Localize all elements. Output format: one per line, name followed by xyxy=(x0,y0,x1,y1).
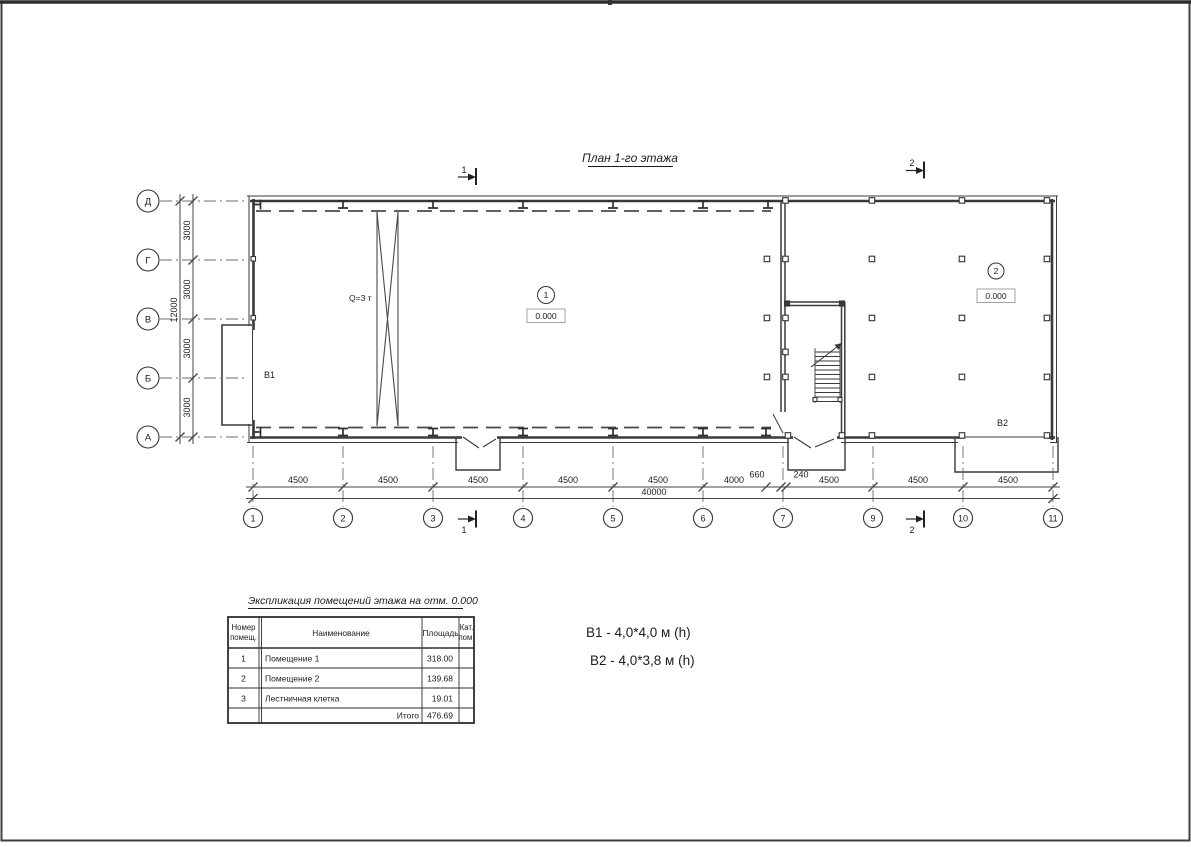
gate-b2-label: B2 xyxy=(997,418,1008,428)
bottom-dimension-values: 4500 4500 4500 4500 4500 4000 660 240 45… xyxy=(288,470,1018,498)
section-label: 1 xyxy=(461,525,466,535)
dim-value: 3000 xyxy=(182,397,192,417)
axis-label: 11 xyxy=(1048,513,1057,523)
cell-area: 318.00 xyxy=(427,654,453,664)
axis-label: 2 xyxy=(340,513,345,523)
room-tag-1: 1 0.000 xyxy=(527,287,565,323)
cell-name: Помещение 2 xyxy=(265,674,320,684)
loading-dock-b2 xyxy=(955,437,1058,472)
dim-value: 4000 xyxy=(724,475,744,485)
room-elevation: 0.000 xyxy=(535,311,557,321)
axis-label: 9 xyxy=(870,513,875,523)
dim-value: 3000 xyxy=(182,279,192,299)
crane-runway xyxy=(256,211,771,428)
axis-bubbles-left: Д Г В Б А xyxy=(137,190,159,448)
axis-label: 1 xyxy=(250,513,255,523)
dim-value: 240 xyxy=(793,470,808,480)
crane-capacity-label: Q=3 т xyxy=(349,293,372,303)
total-label: Итого xyxy=(397,711,420,721)
dim-value: 4500 xyxy=(908,475,928,485)
page-border xyxy=(0,0,1191,841)
steel-columns xyxy=(254,200,774,438)
dim-total: 40000 xyxy=(641,487,666,497)
page-title: План 1-го этажа xyxy=(582,151,678,165)
cell-name: Лестничная клетка xyxy=(265,694,340,704)
cell-area: 139.68 xyxy=(427,674,453,684)
dim-value: 4500 xyxy=(819,475,839,485)
axis-label: 7 xyxy=(780,513,785,523)
cell-num: 2 xyxy=(241,674,246,684)
col-header-number: Номер xyxy=(232,623,257,632)
floorplan-canvas: План 1-го этажа 1 2 xyxy=(0,0,1191,842)
axis-label: 10 xyxy=(958,513,968,523)
axis-extension-lines xyxy=(160,201,1053,507)
gate-b1-platform xyxy=(222,325,252,425)
room-tag-2: 2 0.000 xyxy=(977,263,1015,303)
door-swing xyxy=(773,414,783,433)
room-number: 1 xyxy=(544,290,549,300)
top-tick-mark xyxy=(608,0,612,5)
title-block: План 1-го этажа xyxy=(582,151,678,167)
axis-label: 3 xyxy=(430,513,435,523)
room-number: 2 xyxy=(994,266,999,276)
cell-area: 19.01 xyxy=(432,694,454,704)
section-marker-1-top: 1 xyxy=(458,165,476,185)
room-schedule: Экспликация помещений этажа на отм. 0.00… xyxy=(228,595,478,723)
table-row: 2 Помещение 2 139.68 xyxy=(241,674,453,684)
axis-bubbles-bottom: 1 2 3 4 5 6 7 9 10 11 xyxy=(244,509,1063,528)
cell-num: 1 xyxy=(241,654,246,664)
room-elevation: 0.000 xyxy=(985,291,1007,301)
dim-value: 4500 xyxy=(288,475,308,485)
section-marker-1-bottom: 1 xyxy=(458,511,476,536)
axis-label: 5 xyxy=(610,513,615,523)
cell-num: 3 xyxy=(241,694,246,704)
entrance-porch-a xyxy=(456,437,500,470)
dim-value: 4500 xyxy=(378,475,398,485)
plan-walls xyxy=(247,196,1058,443)
section-marker-2-top: 2 xyxy=(906,158,924,179)
legend-b2: B2 - 4,0*3,8 м (h) xyxy=(590,653,695,668)
section-label: 2 xyxy=(909,525,914,535)
dim-value: 4500 xyxy=(468,475,488,485)
cell-name: Помещение 1 xyxy=(265,654,320,664)
table-row: 1 Помещение 1 318.00 xyxy=(241,654,453,664)
dim-value: 3000 xyxy=(182,338,192,358)
drawing-sheet: План 1-го этажа 1 2 xyxy=(0,0,1191,842)
col-header-name: Наименование xyxy=(312,628,370,638)
dim-total: 12000 xyxy=(169,297,179,322)
dim-value: 660 xyxy=(749,470,764,480)
dimension-lines xyxy=(176,194,1061,503)
section-label: 2 xyxy=(909,158,914,168)
plan-annotations: Q=3 т B1 B2 xyxy=(264,293,1008,428)
section-marker-2-bottom: 2 xyxy=(906,511,924,536)
gate-b1-label: B1 xyxy=(264,370,275,380)
crane-cross-brace xyxy=(377,212,398,426)
col-header-number: помещ. xyxy=(230,633,257,642)
legend-b1: B1 - 4,0*4,0 м (h) xyxy=(586,625,691,640)
dimension-ticks xyxy=(176,197,1058,504)
dim-value: 4500 xyxy=(648,475,668,485)
axis-label: 6 xyxy=(700,513,705,523)
axis-label: 4 xyxy=(520,513,525,523)
schedule-title: Экспликация помещений этажа на отм. 0.00… xyxy=(248,595,478,607)
axis-label: Б xyxy=(145,374,151,385)
entrance-porch-b xyxy=(788,437,845,470)
schedule-rows: 1 Помещение 1 318.00 2 Помещение 2 139.6… xyxy=(241,654,453,721)
square-columns xyxy=(251,198,1050,439)
gate-legend: B1 - 4,0*4,0 м (h) B2 - 4,0*3,8 м (h) xyxy=(586,625,695,668)
dim-value: 3000 xyxy=(182,220,192,240)
dim-value: 4500 xyxy=(558,475,578,485)
schedule-header-row: Номер помещ. Наименование Площадь Кат. п… xyxy=(230,623,474,642)
col-header-category: Кат. xyxy=(460,623,474,632)
table-total-row: Итого 476.69 xyxy=(397,711,454,721)
axis-label: Г xyxy=(145,256,150,267)
col-header-category: пом. xyxy=(458,633,474,642)
stairwell xyxy=(785,302,845,438)
dim-value: 4500 xyxy=(998,475,1018,485)
total-value: 476.69 xyxy=(427,711,453,721)
table-row: 3 Лестничная клетка 19.01 xyxy=(241,694,453,704)
section-label: 1 xyxy=(461,165,466,175)
axis-label: А xyxy=(145,433,152,444)
axis-label: В xyxy=(145,315,151,326)
axis-label: Д xyxy=(145,197,152,208)
col-header-area: Площадь xyxy=(422,628,458,638)
